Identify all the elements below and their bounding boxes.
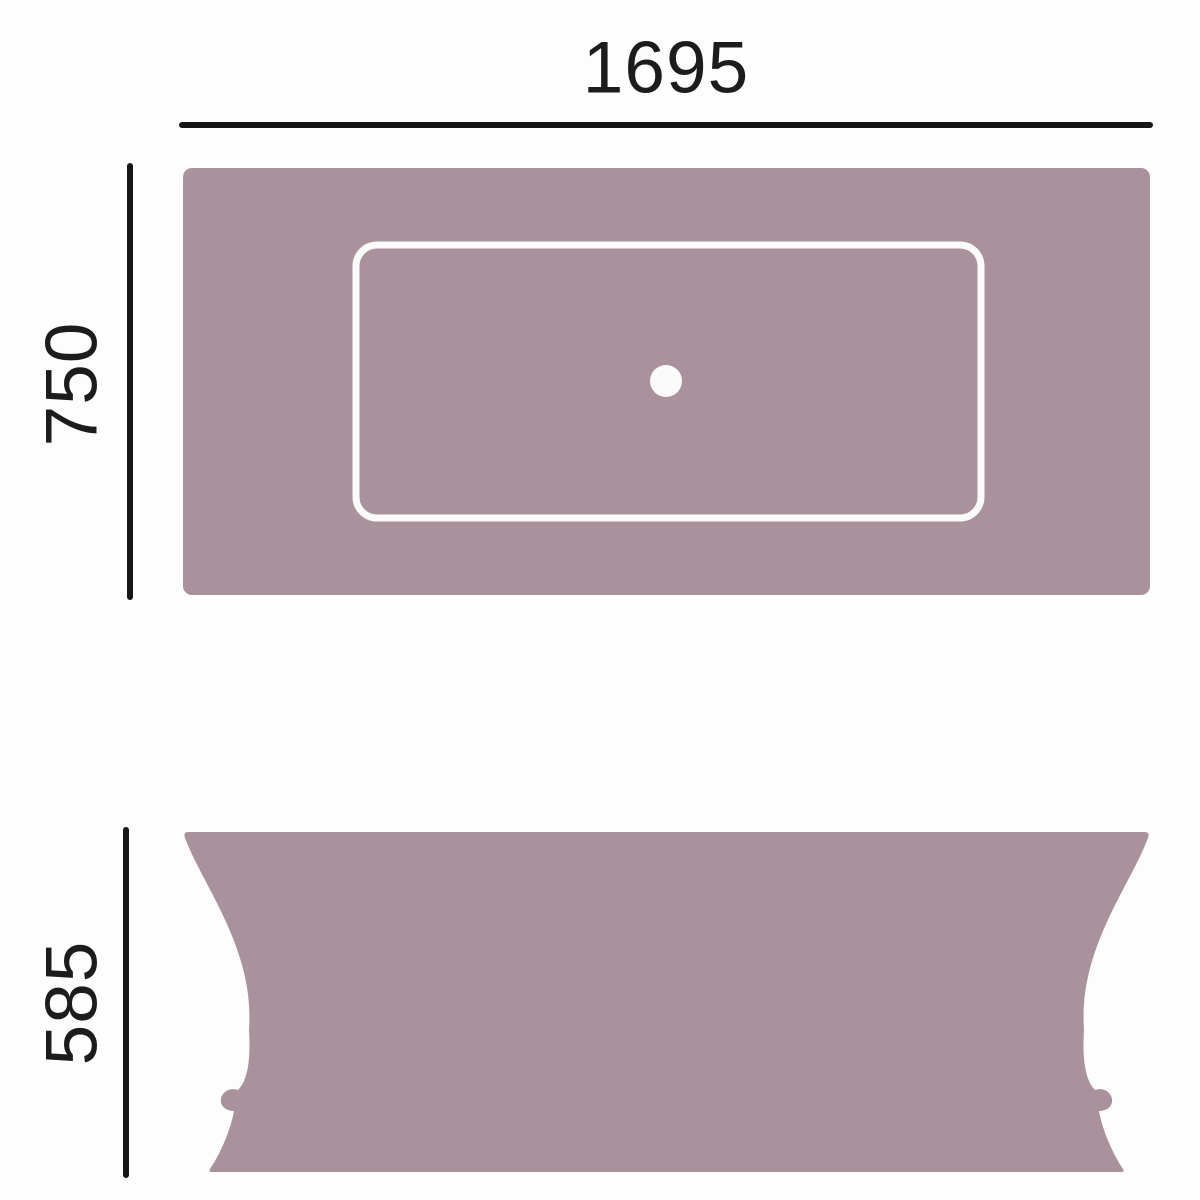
depth-dimension-label: 750 (32, 322, 113, 447)
height-dimension-label: 585 (32, 941, 113, 1066)
dimension-drawing-canvas: 1695 750 585 (0, 0, 1200, 1200)
bathtub-dimension-diagram: 1695 750 585 (0, 0, 1200, 1200)
tub-body-side-view (184, 832, 1148, 1172)
width-dimension-label: 1695 (583, 28, 749, 109)
drain-hole (650, 365, 682, 397)
